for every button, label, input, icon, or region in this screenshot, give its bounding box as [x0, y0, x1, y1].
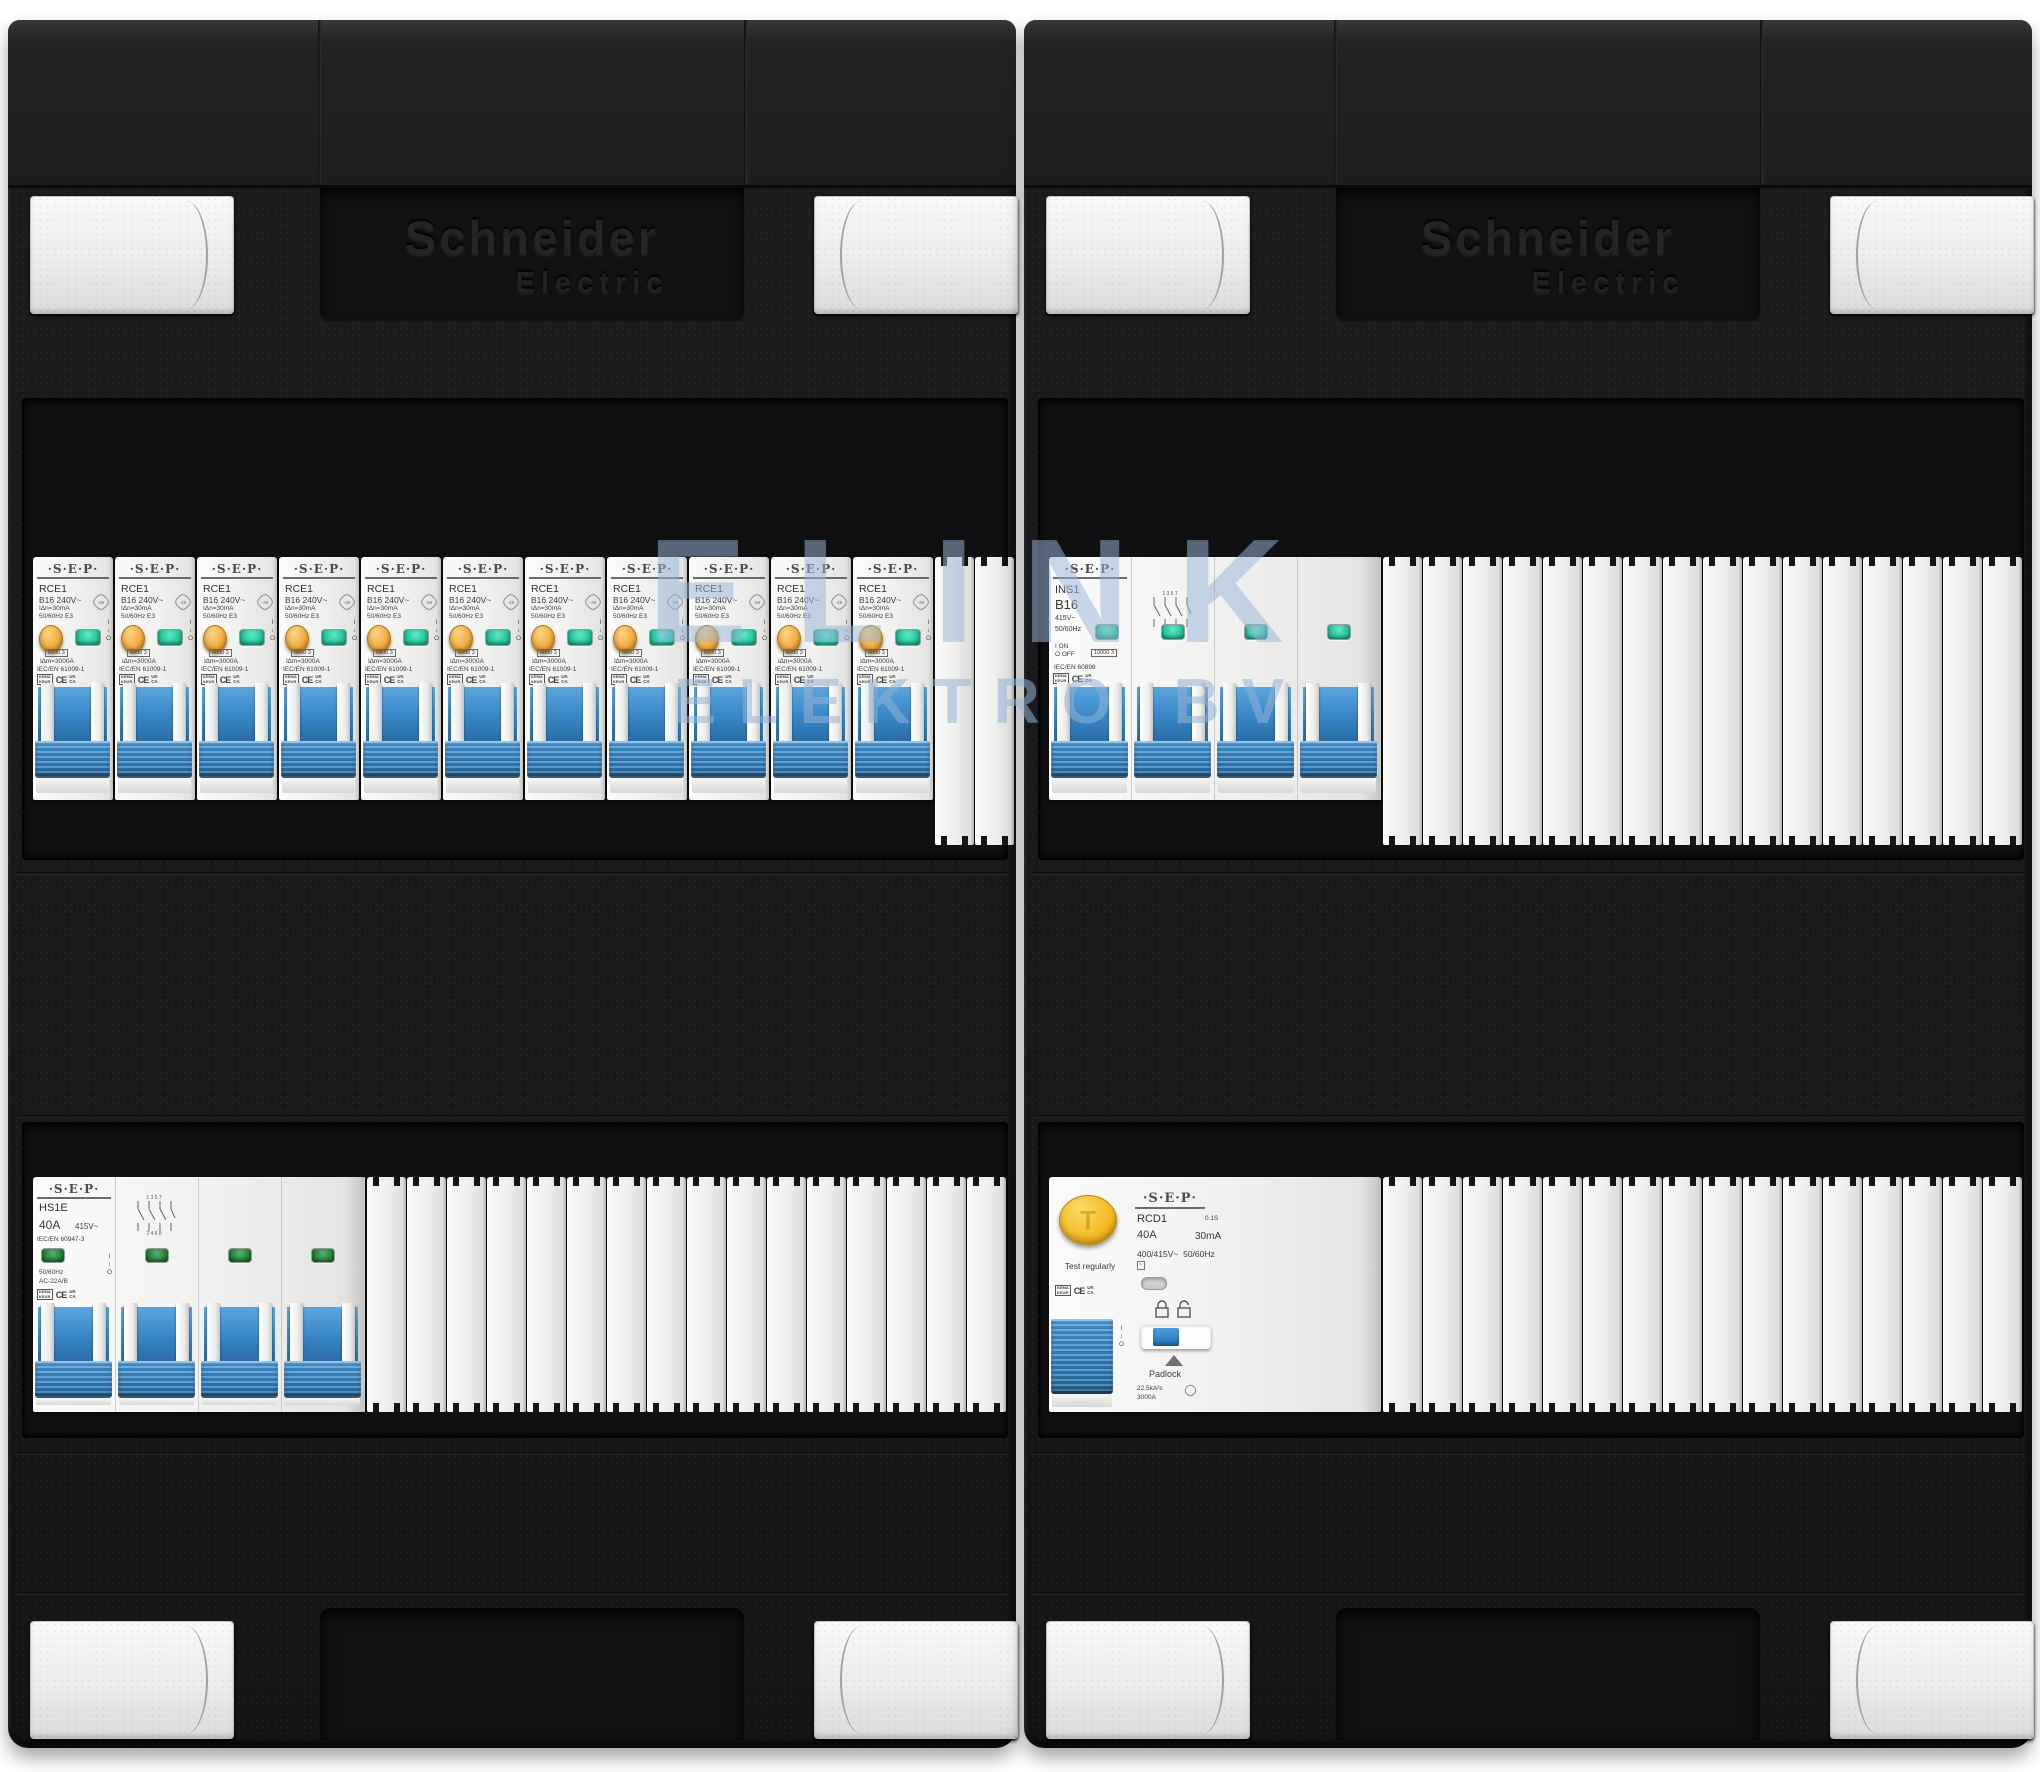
rating-label: B16 — [1055, 597, 1078, 612]
idn-label: IΔn=30mA — [695, 605, 726, 612]
model-label: RCE1 — [367, 583, 395, 595]
amps-label: 40A — [1137, 1229, 1157, 1241]
on-off-indicator: I↕O — [516, 619, 521, 643]
blank-filler-strip — [1583, 1177, 1622, 1412]
blank-filler-strip — [527, 1177, 566, 1412]
model-label: RCE1 — [777, 583, 805, 595]
blank-filler-strip — [1663, 1177, 1702, 1412]
snowflake-icon — [1183, 1383, 1199, 1399]
breaker-toggle[interactable] — [445, 687, 520, 793]
toggle-foot — [200, 778, 273, 793]
blank-filler-strip — [1983, 1177, 2022, 1412]
cabinet-left: Schneider Electric ·S·E·P· RCE1 B16 240V… — [8, 20, 1016, 1748]
freq-label: 50/60Hz — [39, 1269, 63, 1276]
brand-electric: Electric — [1532, 267, 1685, 300]
breaking-capacity: 6000 3 — [537, 649, 560, 657]
status-indicator-window — [41, 1248, 65, 1263]
rcbo-breaker: ·S·E·P· RCE1 B16 240V~ -25 IΔn=30mA 50/6… — [607, 557, 687, 800]
freq-label: 50/60Hz E3 — [121, 613, 155, 620]
toggle-tab — [665, 683, 678, 743]
toggle-foot — [1135, 778, 1210, 793]
switch-toggle[interactable] — [35, 1307, 112, 1405]
rcbo-breaker: ·S·E·P· RCE1 B16 240V~ -25 IΔn=30mA 50/6… — [443, 557, 523, 800]
standard-label: IEC/EN 61009-1 — [119, 666, 166, 673]
blank-filler-strip — [807, 1177, 846, 1412]
seam — [1760, 20, 1763, 185]
blank-filler-strip — [1823, 557, 1862, 845]
blank-filler-strip — [1903, 1177, 1942, 1412]
toggle-foot — [285, 1398, 360, 1405]
standard-label: IEC/EN 60898 — [1054, 664, 1096, 671]
model-label: RCE1 — [285, 583, 313, 595]
toggle-tab — [287, 683, 300, 743]
on-off-indicator: I↕O — [1119, 1325, 1124, 1349]
status-indicator-window — [145, 1248, 169, 1263]
switch-toggle[interactable] — [201, 1307, 278, 1405]
main-switch-hs1e: ·S·E·P· HS1E 40A 415V~ IEC/EN 60947-3 I↕… — [33, 1177, 365, 1412]
sep-logo: ·S·E·P· — [119, 562, 191, 579]
blank-filler-strip — [1543, 1177, 1582, 1412]
sep-logo: ·S·E·P· — [201, 562, 273, 579]
model-label: RCE1 — [39, 583, 67, 595]
toggle-tab — [41, 683, 54, 743]
breaking-capacity: 6000 3 — [619, 649, 642, 657]
on-off-indicator: I↕O — [270, 619, 275, 643]
cold-rating-icon: -25 — [583, 592, 603, 612]
toggle-foot — [202, 1398, 277, 1405]
toggle-tab — [697, 683, 710, 743]
blank-filler-strip — [607, 1177, 646, 1412]
switch-pole-1: ·S·E·P· HS1E 40A 415V~ IEC/EN 60947-3 I↕… — [33, 1177, 116, 1412]
voltage-label: 415V~ — [75, 1222, 98, 1231]
status-indicator-window — [1244, 624, 1268, 640]
cover-clip — [30, 196, 234, 314]
wiring-diagram-icon — [132, 1201, 176, 1231]
blank-filler-strip — [1943, 1177, 1982, 1412]
din-row-bottom-right: T Test regularly KEMAKEUR CE UKCA I↕O ·S… — [1049, 1177, 2023, 1412]
status-indicator-window — [813, 629, 839, 646]
test-regularly-label: Test regularly — [1051, 1261, 1129, 1271]
status-indicator-window — [403, 629, 429, 646]
standard-label: IEC/EN 61009-1 — [283, 666, 330, 673]
switch-pole — [282, 1177, 365, 1412]
toggle-foot — [1052, 1394, 1112, 1407]
im-label: I∆m=3000A — [204, 658, 238, 665]
rcbo-breaker: ·S·E·P· RCE1 B16 240V~ -25 IΔn=30mA 50/6… — [689, 557, 769, 800]
toggle-handle — [201, 1361, 278, 1398]
sep-logo: ·S·E·P· — [693, 562, 765, 579]
model-label: RCE1 — [121, 583, 149, 595]
toggle-tab — [205, 683, 218, 743]
toggle-handle — [1300, 741, 1377, 778]
breaking-capacity: 6000 3 — [865, 649, 888, 657]
breaking-capacity: 6000 3 — [291, 649, 314, 657]
certification-marks: KEMAKEUR CE UKCA — [37, 1289, 76, 1300]
rcd-test-button[interactable]: T — [1059, 1195, 1117, 1245]
im-label: I∆m=3000A — [368, 658, 402, 665]
on-label: I ON — [1055, 643, 1068, 650]
rcbo-breaker: ·S·E·P· RCE1 B16 240V~ -25 IΔn=30mA 50/6… — [197, 557, 277, 800]
certification-marks: KEMAKEUR CE UKCA — [1055, 1285, 1094, 1296]
standard-label: IEC/EN 61009-1 — [857, 666, 904, 673]
status-indicator-window — [731, 629, 757, 646]
idn-label: IΔn=30mA — [285, 605, 316, 612]
rcd-toggle[interactable] — [1051, 1319, 1113, 1407]
blank-filler-strip — [1583, 557, 1622, 845]
breaker-toggle[interactable] — [527, 687, 602, 793]
switch-pole-2: 1 3 5 7 2 4 6 8 — [116, 1177, 199, 1412]
breaking-capacity: 6000 3 — [127, 649, 150, 657]
cover-clip — [1830, 1621, 2034, 1739]
toggle-tab — [1358, 683, 1371, 743]
toggle-tab — [337, 683, 350, 743]
breaking-capacity: 6000 3 — [701, 649, 724, 657]
toggle-handle — [691, 741, 766, 778]
im-label: I∆m=3000A — [40, 658, 74, 665]
off-label: O OFF — [1055, 651, 1075, 658]
toggle-handle — [284, 1361, 361, 1398]
padlock-label: Padlock — [1149, 1369, 1181, 1379]
switch-pole — [199, 1177, 282, 1412]
toggle-handle — [35, 1361, 112, 1398]
standard-label: IEC/EN 61009-1 — [365, 666, 412, 673]
status-indicator-window — [75, 629, 101, 646]
isolator-pole — [1215, 557, 1298, 800]
breaker-toggle[interactable] — [117, 687, 192, 793]
seam — [1032, 1115, 2024, 1118]
standard-label: IEC/EN 61009-1 — [529, 666, 576, 673]
toggle-tab — [451, 683, 464, 743]
model-label: RCD1 — [1137, 1213, 1167, 1225]
blank-filler-strip — [1623, 1177, 1662, 1412]
isolator-toggle[interactable] — [1300, 687, 1377, 793]
breaker-toggle[interactable] — [773, 687, 848, 793]
rcbo-breaker: ·S·E·P· RCE1 B16 240V~ -25 IΔn=30mA 50/6… — [33, 557, 113, 800]
cold-rating-icon: -25 — [91, 592, 111, 612]
freq-label: 50/60Hz E3 — [695, 613, 729, 620]
toggle-tab — [911, 683, 924, 743]
blank-filler-strip — [1863, 1177, 1902, 1412]
toggle-foot — [118, 778, 191, 793]
freq-label: 50/60Hz E3 — [531, 613, 565, 620]
toggle-foot — [610, 778, 683, 793]
blank-filler-strip — [1383, 1177, 1422, 1412]
toggle-tab — [583, 683, 596, 743]
model-label: RCE1 — [859, 583, 887, 595]
cover-clip — [1046, 1621, 1250, 1739]
blank-filler-strip — [1863, 557, 1902, 845]
toggle-tab — [1306, 683, 1319, 743]
cold-rating-icon: -25 — [255, 592, 275, 612]
sep-logo: ·S·E·P· — [1135, 1191, 1205, 1209]
blank-filler-strip — [927, 1177, 966, 1412]
blank-filler-strip — [567, 1177, 606, 1412]
rating-label: B16 240V~ — [695, 595, 737, 605]
cabinet-top-cap — [1024, 20, 2032, 188]
rating-label: B16 240V~ — [121, 595, 163, 605]
breaker-toggle[interactable] — [855, 687, 930, 793]
freq-label: 50/60Hz E3 — [613, 613, 647, 620]
freq-label: 50/60Hz E3 — [859, 613, 893, 620]
freq-label: 50/60Hz E3 — [777, 613, 811, 620]
seam — [1032, 872, 2024, 875]
toggle-tab — [91, 683, 104, 743]
inc-label: 3000A — [1137, 1394, 1156, 1401]
schneider-logo-panel: Schneider Electric — [1336, 188, 1760, 322]
toggle-tab — [369, 683, 382, 743]
blank-filler-strip — [1823, 1177, 1862, 1412]
im-label: I∆m=3000A — [286, 658, 320, 665]
status-indicator-window — [239, 629, 265, 646]
model-label: RCE1 — [531, 583, 559, 595]
wiring-diagram: 1 3 5 7 2 4 6 8 — [132, 1195, 176, 1237]
cover-clip — [1046, 196, 1250, 314]
blank-filler-strip — [407, 1177, 446, 1412]
toggle-foot — [119, 1398, 194, 1405]
standard-label: IEC/EN 61009-1 — [775, 666, 822, 673]
toggle-foot — [1218, 778, 1293, 793]
cold-rating-icon: -25 — [173, 592, 193, 612]
freq-label: 50/60Hz E3 — [449, 613, 483, 620]
toggle-handle — [118, 1361, 195, 1398]
status-indicator-window — [485, 629, 511, 646]
rating-label: B16 240V~ — [367, 595, 409, 605]
cover-clip — [1830, 196, 2034, 314]
blank-filler-strip — [487, 1177, 526, 1412]
rcd-device: T Test regularly KEMAKEUR CE UKCA I↕O ·S… — [1049, 1177, 1381, 1412]
on-off-indicator: I↕O — [598, 619, 603, 643]
isolator-ins1: ·S·E·P· INS1 B16 415V~ 50/60Hz I ON O OF… — [1049, 557, 1381, 800]
im-label: I∆m=3000A — [450, 658, 484, 665]
breaker-toggle[interactable] — [691, 687, 766, 793]
sep-logo: ·S·E·P· — [365, 562, 437, 579]
on-off-indicator: I↕O — [926, 619, 931, 643]
standard-label: IEC/EN 61009-1 — [201, 666, 248, 673]
din-row-top-right: ·S·E·P· INS1 B16 415V~ 50/60Hz I ON O OF… — [1049, 557, 2023, 845]
blank-filler-strip — [975, 557, 1014, 845]
toggle-tab — [779, 683, 792, 743]
breaker-toggle[interactable] — [35, 687, 110, 793]
toggle-tab — [533, 683, 546, 743]
model-label: RCE1 — [695, 583, 723, 595]
blank-filler-strip — [727, 1177, 766, 1412]
toggle-handle — [363, 741, 438, 778]
blank-filler-strip — [1983, 557, 2022, 845]
model-label: RCE1 — [613, 583, 641, 595]
toggle-foot — [774, 778, 847, 793]
toggle-tab — [41, 1303, 54, 1363]
delay-label: 0.1S — [1205, 1215, 1218, 1222]
toggle-foot — [36, 778, 109, 793]
status-indicator-window — [567, 629, 593, 646]
seam — [16, 872, 1008, 875]
im-label: I∆m=3000A — [778, 658, 812, 665]
toggle-handle — [1217, 741, 1294, 778]
blank-filler-strip — [1943, 557, 1982, 845]
toggle-foot — [1052, 778, 1127, 793]
standard-label: IEC/EN 61009-1 — [693, 666, 740, 673]
breaking-capacity: 6000 3 — [783, 649, 806, 657]
breaker-toggle[interactable] — [363, 687, 438, 793]
toggle-tab — [747, 683, 760, 743]
bottom-recess-panel — [1336, 1608, 1760, 1740]
rcbo-breaker: ·S·E·P· RCE1 B16 240V~ -25 IΔn=30mA 50/6… — [361, 557, 441, 800]
seam — [16, 1115, 1008, 1118]
status-indicator-window — [649, 629, 675, 646]
cover-clip — [814, 196, 1018, 314]
cover-clip — [30, 1621, 234, 1739]
toggle-tab — [342, 1303, 355, 1363]
status-indicator-window — [311, 1248, 335, 1263]
rating-label: B16 240V~ — [203, 595, 245, 605]
blank-filler-strip — [1463, 1177, 1502, 1412]
blank-filler-strip — [1783, 1177, 1822, 1412]
sep-logo: ·S·E·P· — [37, 562, 109, 579]
rating-label: B16 240V~ — [613, 595, 655, 605]
toggle-handle — [1051, 1319, 1113, 1394]
cold-rating-icon: -25 — [419, 592, 439, 612]
status-indicator-window — [157, 629, 183, 646]
toggle-handle — [773, 741, 848, 778]
sep-logo: ·S·E·P· — [447, 562, 519, 579]
toggle-handle — [609, 741, 684, 778]
toggle-foot — [282, 778, 355, 793]
standard-label: IEC/EN 60947-3 — [37, 1236, 84, 1243]
toggle-foot — [856, 778, 929, 793]
sep-logo: ·S·E·P· — [775, 562, 847, 579]
padlock-slider-knob[interactable] — [1153, 1328, 1179, 1346]
cold-rating-icon: -25 — [829, 592, 849, 612]
idn-label: IΔn=30mA — [203, 605, 234, 612]
on-off-indicator: I↕O — [844, 619, 849, 643]
toggle-tab — [176, 1303, 189, 1363]
toggle-handle — [35, 741, 110, 778]
toggle-foot — [364, 778, 437, 793]
seam — [1334, 20, 1337, 185]
rating-label: B16 240V~ — [777, 595, 819, 605]
status-indicator-window — [228, 1248, 252, 1263]
idn-label: IΔn=30mA — [531, 605, 562, 612]
toggle-tab — [501, 683, 514, 743]
breaker-toggle[interactable] — [199, 687, 274, 793]
toggle-foot — [36, 1398, 111, 1405]
rating-label: B16 240V~ — [285, 595, 327, 605]
isolator-toggle[interactable] — [1217, 687, 1294, 793]
freq-label: 50/60Hz E3 — [39, 613, 73, 620]
idn-label: IΔn=30mA — [777, 605, 808, 612]
toggle-tab — [1223, 683, 1236, 743]
padlock-slider-track — [1141, 1325, 1211, 1349]
toggle-tab — [1192, 683, 1205, 743]
toggle-tab — [829, 683, 842, 743]
cold-rating-icon: -25 — [501, 592, 521, 612]
bottom-recess-panel — [320, 1608, 744, 1740]
schneider-logo-panel: Schneider Electric — [320, 188, 744, 322]
distribution-board-photo: Schneider Electric ·S·E·P· RCE1 B16 240V… — [0, 0, 2040, 1772]
blank-filler-strip — [935, 557, 974, 845]
on-off-indicator: I↕O — [434, 619, 439, 643]
brand-electric: Electric — [516, 267, 669, 300]
blank-filler-strip — [647, 1177, 686, 1412]
on-off-indicator: I↕O — [188, 619, 193, 643]
padlock-arrow — [1165, 1355, 1183, 1366]
toggle-tab — [1275, 683, 1288, 743]
rating-label: B16 240V~ — [531, 595, 573, 605]
isolator-toggle[interactable] — [1051, 687, 1128, 793]
toggle-tab — [207, 1303, 220, 1363]
model-label: INS1 — [1055, 584, 1079, 596]
cold-rating-icon: -25 — [911, 592, 931, 612]
toggle-handle — [855, 741, 930, 778]
toggle-tab — [1109, 683, 1122, 743]
breaking-capacity: 6000 3 — [455, 649, 478, 657]
blank-filler-strip — [1463, 557, 1502, 845]
sep-logo: ·S·E·P· — [857, 562, 929, 579]
blank-filler-strip — [887, 1177, 926, 1412]
rating-label: B16 240V~ — [859, 595, 901, 605]
breaker-toggle[interactable] — [281, 687, 356, 793]
toggle-tab — [124, 1303, 137, 1363]
blank-filler-strip — [1503, 557, 1542, 845]
switch-toggle[interactable] — [118, 1307, 195, 1405]
standard-label: IEC/EN 61009-1 — [37, 666, 84, 673]
cabinet-top-cap — [8, 20, 1016, 188]
blank-filler-strip — [1903, 557, 1942, 845]
sep-logo: ·S·E·P· — [1053, 562, 1127, 579]
toggle-handle — [445, 741, 520, 778]
cabinet-right: Schneider Electric ·S·E·P· INS1 B16 415V… — [1024, 20, 2032, 1748]
blank-filler-strip — [847, 1177, 886, 1412]
toggle-tab — [255, 683, 268, 743]
breaking-capacity: 6000 3 — [209, 649, 232, 657]
blank-filler-strip — [1543, 557, 1582, 845]
wiring-diagram-icon — [1148, 597, 1192, 627]
model-label: RCE1 — [449, 583, 477, 595]
blank-filler-strip — [1703, 1177, 1742, 1412]
idn-label: IΔn=30mA — [449, 605, 480, 612]
cold-rating-icon: -25 — [337, 592, 357, 612]
toggle-tab — [173, 683, 186, 743]
blank-filler-strip — [1623, 557, 1662, 845]
din-row-top-left: ·S·E·P· RCE1 B16 240V~ -25 IΔn=30mA 50/6… — [33, 557, 1015, 845]
standard-label: IEC/EN 61009-1 — [447, 666, 494, 673]
toggle-tab — [861, 683, 874, 743]
isolator-toggle[interactable] — [1134, 687, 1211, 793]
seam — [744, 20, 747, 185]
blank-filler-strip — [1423, 557, 1462, 845]
seam — [16, 1592, 1008, 1595]
blank-filler-strip — [1783, 557, 1822, 845]
switch-toggle[interactable] — [284, 1307, 361, 1405]
im-label: I∆m=3000A — [532, 658, 566, 665]
toggle-handle — [1134, 741, 1211, 778]
seam — [16, 1452, 1008, 1455]
sep-logo: ·S·E·P· — [529, 562, 601, 579]
blank-filler-strip — [1383, 557, 1422, 845]
idn-label: IΔn=30mA — [367, 605, 398, 612]
blank-filler-strip — [1743, 1177, 1782, 1412]
breaking-capacity: 6000 3 — [45, 649, 68, 657]
breaker-toggle[interactable] — [609, 687, 684, 793]
toggle-tab — [290, 1303, 303, 1363]
blank-filler-strip — [687, 1177, 726, 1412]
im-label: I∆m=3000A — [122, 658, 156, 665]
rating-label: B16 240V~ — [449, 595, 491, 605]
utilization-label: AC-22A/B — [39, 1278, 68, 1285]
status-indicator-window — [1327, 624, 1351, 640]
rating-label: B16 240V~ — [39, 595, 81, 605]
idn-label: IΔn=30mA — [859, 605, 890, 612]
